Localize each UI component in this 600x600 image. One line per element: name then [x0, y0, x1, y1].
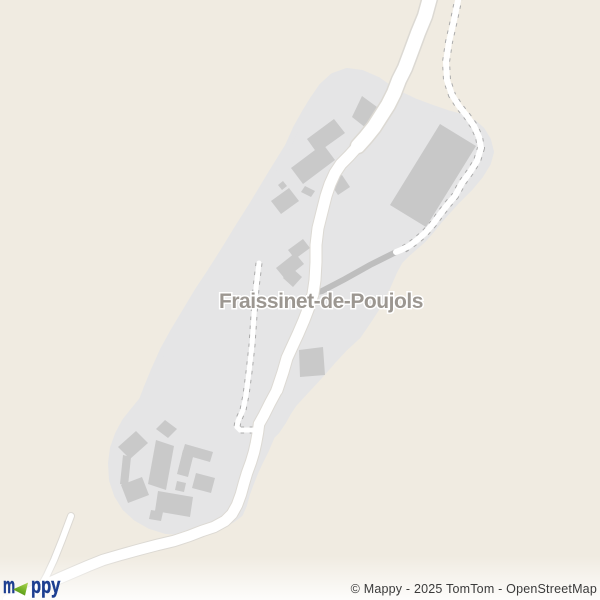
svg-text:Fraissinet-de-Poujols: Fraissinet-de-Poujols [219, 290, 423, 313]
svg-text:ppy: ppy [31, 575, 60, 599]
svg-text:m: m [3, 575, 15, 598]
